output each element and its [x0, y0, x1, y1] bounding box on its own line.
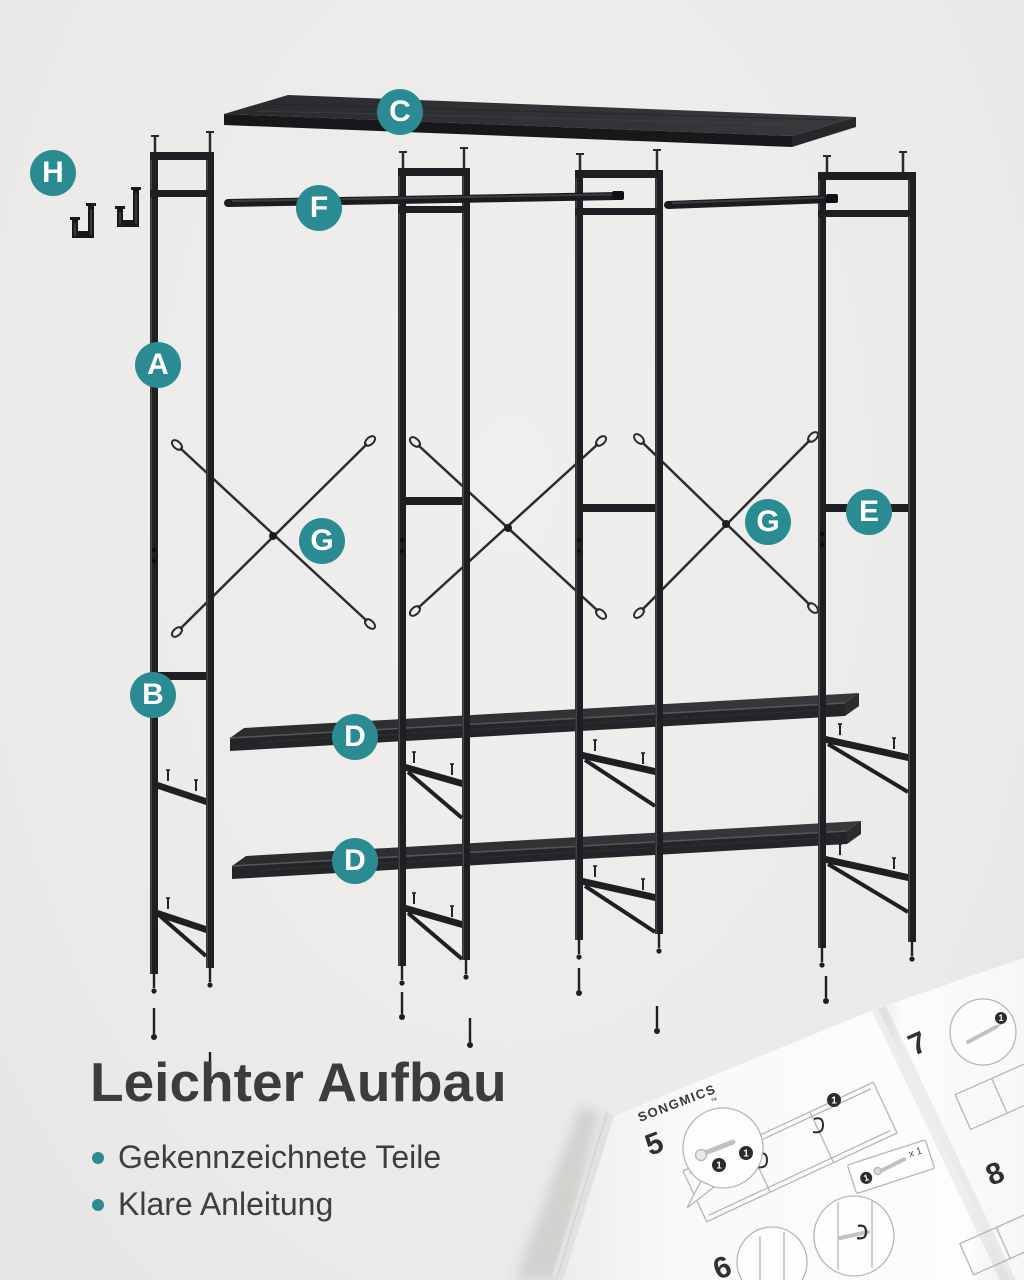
- part-label-g-left: G: [299, 518, 345, 564]
- part-letter: G: [756, 507, 779, 537]
- part-letter: G: [310, 526, 333, 556]
- s-hook-right: [115, 187, 141, 227]
- part-letter: B: [142, 680, 164, 710]
- badge-number: 1: [716, 1161, 722, 1172]
- s-hooks: [70, 187, 141, 238]
- instruction-manual: 1 1 1 1 x 1 1 SONGMICS ™ 5 6 7 8: [515, 958, 1024, 1280]
- diagram-stage: 1 1 1 1 x 1 1 SONGMICS ™ 5 6 7 8 A B C D…: [0, 0, 1024, 1280]
- part-label-c: C: [377, 89, 423, 135]
- cross-brace-1: [170, 434, 377, 638]
- part-letter: D: [344, 722, 366, 752]
- part-label-d-lower: D: [332, 838, 378, 884]
- feature-item: Klare Anleitung: [92, 1186, 507, 1223]
- part-label-h: H: [30, 150, 76, 196]
- headline: Leichter Aufbau: [90, 1050, 507, 1114]
- part-letter: E: [859, 497, 879, 527]
- top-board: [224, 95, 856, 147]
- caption-block: Leichter Aufbau Gekennzeichnete Teile Kl…: [90, 1050, 507, 1233]
- part-label-e: E: [846, 489, 892, 535]
- part-label-b: B: [130, 672, 176, 718]
- badge-number: 1: [743, 1149, 749, 1160]
- badge-number: 1: [998, 1013, 1003, 1023]
- part-letter: H: [42, 158, 64, 188]
- feature-text: Gekennzeichnete Teile: [118, 1139, 441, 1176]
- part-label-a: A: [135, 342, 181, 388]
- part-label-d-upper: D: [332, 714, 378, 760]
- feature-list: Gekennzeichnete Teile Klare Anleitung: [92, 1139, 507, 1223]
- cross-braces: [170, 430, 820, 638]
- badge-number: 1: [831, 1096, 837, 1107]
- side-frame-4: [818, 152, 916, 968]
- part-label-g-right: G: [745, 499, 791, 545]
- part-letter: D: [344, 846, 366, 876]
- side-frame-1: [150, 132, 214, 994]
- part-letter: A: [147, 350, 169, 380]
- part-letter: C: [389, 97, 411, 127]
- part-letter: F: [310, 193, 328, 223]
- shelf-lower: [232, 821, 861, 879]
- part-label-f: F: [296, 185, 342, 231]
- s-hook-left: [70, 203, 96, 238]
- bullet-dot: [92, 1199, 104, 1211]
- feature-text: Klare Anleitung: [118, 1186, 333, 1223]
- shelf-upper: [230, 693, 859, 751]
- feature-item: Gekennzeichnete Teile: [92, 1139, 507, 1176]
- bullet-dot: [92, 1152, 104, 1164]
